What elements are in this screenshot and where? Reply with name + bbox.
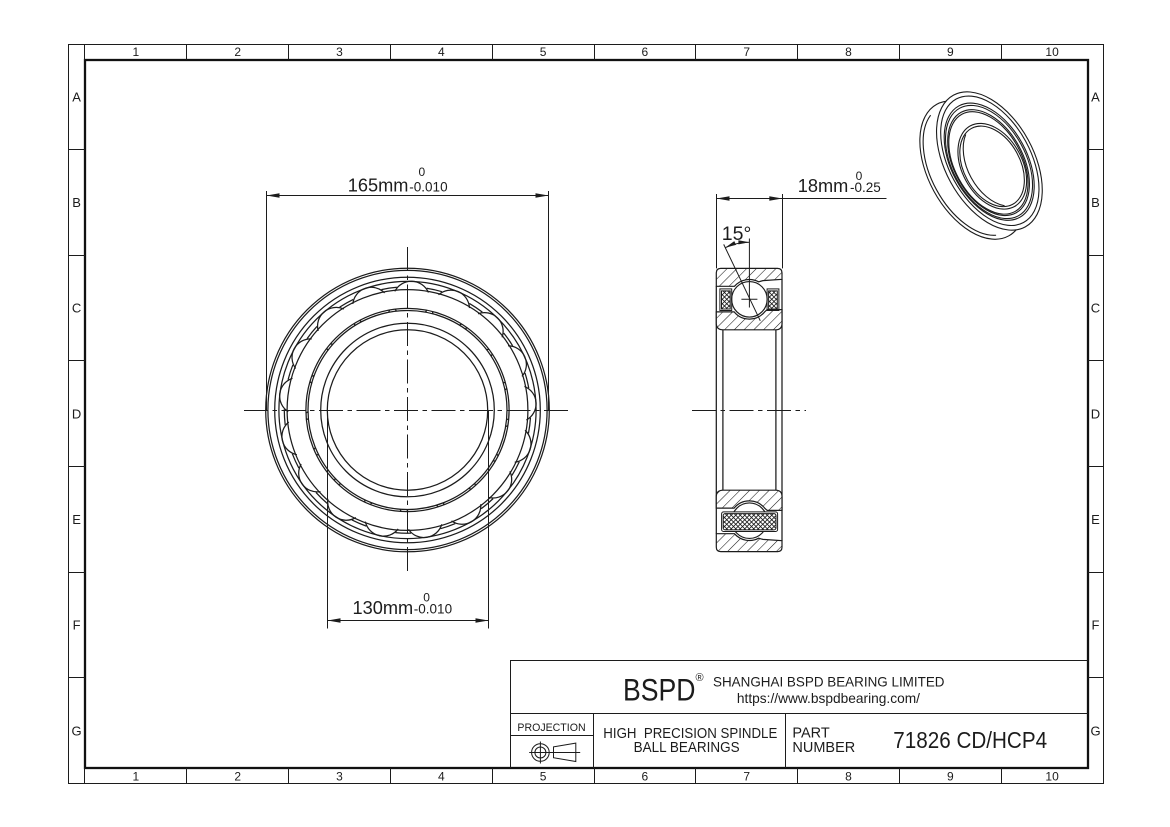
svg-text:B: B — [1091, 195, 1100, 210]
svg-text:5: 5 — [540, 769, 547, 783]
svg-text:D: D — [1091, 406, 1100, 421]
svg-text:D: D — [72, 406, 81, 421]
svg-text:10: 10 — [1045, 769, 1059, 783]
svg-text:A: A — [72, 89, 81, 104]
svg-text:-0.010: -0.010 — [414, 601, 452, 616]
svg-text:18mm: 18mm — [798, 176, 849, 196]
svg-text:3: 3 — [336, 769, 343, 783]
svg-text:BSPD: BSPD — [623, 672, 696, 708]
svg-text:130mm: 130mm — [353, 598, 414, 618]
svg-text:8: 8 — [845, 45, 852, 59]
svg-text:G: G — [72, 723, 82, 738]
svg-text:PROJECTION: PROJECTION — [517, 722, 585, 734]
svg-text:SHANGHAI BSPD BEARING LIMITED: SHANGHAI BSPD BEARING LIMITED — [713, 675, 945, 690]
svg-text:G: G — [1090, 723, 1100, 738]
svg-text:3: 3 — [336, 45, 343, 59]
svg-text:9: 9 — [947, 45, 954, 59]
svg-text:1: 1 — [133, 769, 140, 783]
svg-text:-0.25: -0.25 — [850, 180, 881, 195]
svg-text:NUMBER: NUMBER — [792, 740, 855, 756]
svg-text:2: 2 — [234, 45, 241, 59]
svg-text:-0.010: -0.010 — [409, 180, 447, 195]
svg-text:9: 9 — [947, 769, 954, 783]
svg-text:F: F — [1092, 618, 1100, 633]
svg-text:7: 7 — [743, 769, 750, 783]
svg-text:C: C — [72, 301, 81, 316]
svg-text:4: 4 — [438, 769, 445, 783]
svg-text:2: 2 — [234, 769, 241, 783]
svg-text:5: 5 — [540, 45, 547, 59]
svg-text:BALL BEARINGS: BALL BEARINGS — [634, 740, 740, 756]
svg-text:10: 10 — [1045, 45, 1059, 59]
svg-text:7: 7 — [743, 45, 750, 59]
svg-text:165mm: 165mm — [348, 175, 409, 195]
svg-text:®: ® — [696, 672, 704, 684]
svg-text:B: B — [72, 195, 81, 210]
svg-text:https://www.bspdbearing.com/: https://www.bspdbearing.com/ — [737, 691, 920, 706]
svg-text:PART: PART — [792, 726, 829, 742]
svg-text:6: 6 — [642, 769, 649, 783]
svg-text:1: 1 — [133, 45, 140, 59]
svg-text:E: E — [72, 512, 81, 527]
svg-text:0: 0 — [419, 165, 426, 179]
svg-text:71826 CD/HCP4: 71826 CD/HCP4 — [893, 727, 1047, 753]
svg-text:C: C — [1091, 301, 1100, 316]
svg-text:A: A — [1091, 89, 1100, 104]
svg-text:F: F — [73, 618, 81, 633]
svg-text:E: E — [1091, 512, 1100, 527]
svg-text:6: 6 — [642, 45, 649, 59]
svg-text:15°: 15° — [722, 223, 752, 245]
svg-text:8: 8 — [845, 769, 852, 783]
svg-text:4: 4 — [438, 45, 445, 59]
